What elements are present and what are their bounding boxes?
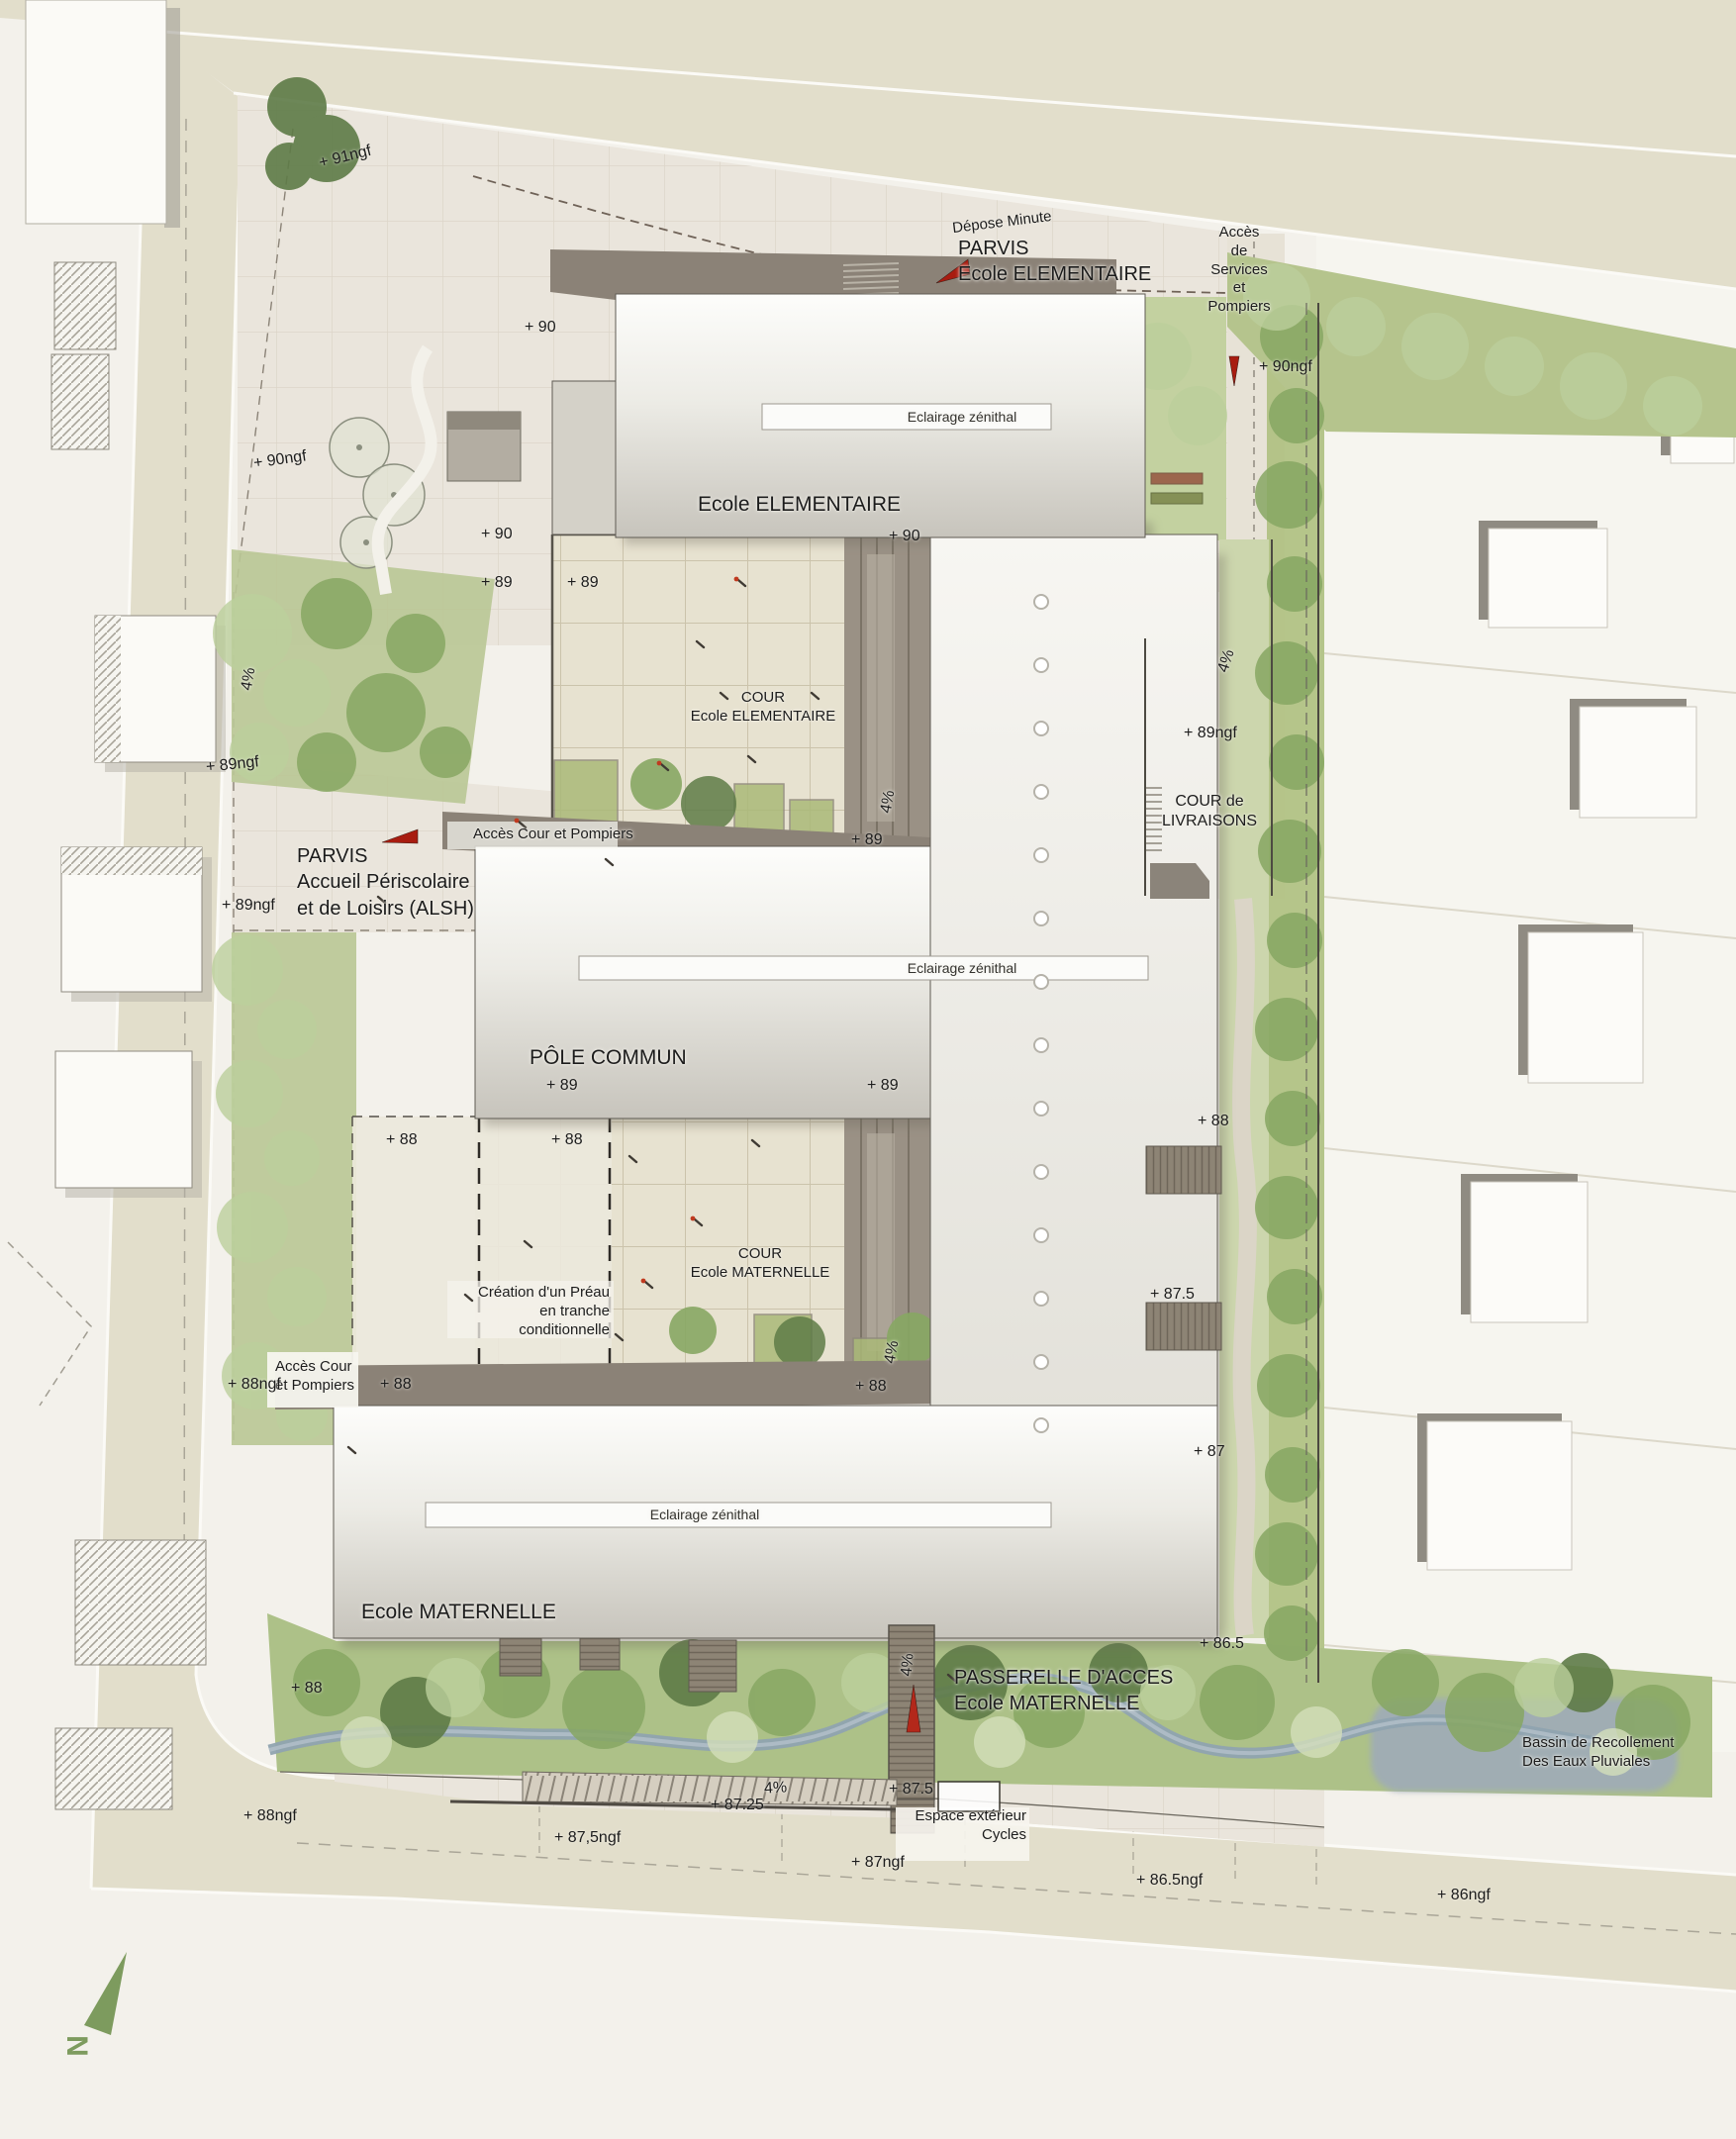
elev-88-b: + 88: [551, 1131, 583, 1149]
elev-89ngf-right: + 89ngf: [1184, 725, 1237, 742]
elev-87-right: + 87: [1194, 1443, 1225, 1461]
elev-90-top: + 90: [525, 319, 556, 337]
elev-89-c: + 89: [851, 831, 883, 849]
label-creation-preau: Création d'un Préau en tranche condition…: [453, 1284, 610, 1339]
label-eclairage-3: Eclairage zénithal: [606, 1507, 804, 1524]
label-espace-cycles: Espace extérieur Cycles: [906, 1807, 1026, 1845]
elev-89ngf-left2: + 89ngf: [222, 897, 275, 915]
label-acces-cour-pompiers: Accès Cour et Pompiers: [473, 826, 633, 844]
courtyard-elementaire: [552, 535, 930, 839]
label-eclairage-1: Eclairage zénithal: [863, 409, 1061, 427]
label-slope-cour-mat: 4%: [881, 1339, 905, 1365]
courtyard-maternelle: [352, 1117, 938, 1368]
elev-88-right: + 88: [1198, 1113, 1229, 1130]
label-ecole-maternelle: Ecole MATERNELLE: [361, 1600, 556, 1625]
label-slope-cour-elem: 4%: [877, 789, 901, 815]
label-slope-ramp: 4%: [763, 1778, 787, 1799]
elev-875ngf: + 87,5ngf: [554, 1829, 621, 1847]
label-eclairage-2: Eclairage zénithal: [863, 960, 1061, 978]
elev-89-d: + 89: [546, 1077, 578, 1095]
label-pole-commun: PÔLE COMMUN: [530, 1045, 687, 1071]
elev-88-a: + 88: [386, 1131, 418, 1149]
elev-86ngf: + 86ngf: [1437, 1887, 1491, 1904]
label-bassin: Bassin de Recollement Des Eaux Pluviales: [1522, 1734, 1674, 1772]
elev-865ngf: + 86.5ngf: [1136, 1872, 1203, 1890]
elementaire-west-wing: [552, 381, 616, 535]
elev-88-e: + 88: [291, 1680, 323, 1698]
elev-89-b: + 89: [567, 574, 599, 592]
elev-88-d: + 88: [855, 1378, 887, 1396]
elev-88-c: + 88: [380, 1376, 412, 1394]
label-cour-livraisons: COUR de LIVRAISONS: [1140, 792, 1279, 831]
label-ecole-elementaire: Ecole ELEMENTAIRE: [698, 492, 901, 518]
label-cour-elementaire: COUR Ecole ELEMENTAIRE: [659, 689, 867, 727]
elev-8725: + 87.25: [711, 1797, 764, 1814]
label-slope-passerelle: 4%: [898, 1653, 919, 1678]
label-passerelle: PASSERELLE D'ACCES Ecole MATERNELLE: [954, 1665, 1173, 1717]
elev-89-e: + 89: [867, 1077, 899, 1095]
label-cour-maternelle: COUR Ecole MATERNELLE: [655, 1245, 865, 1283]
label-parvis-alsh: PARVIS Accueil Périscolaire et de Loisir…: [297, 843, 474, 922]
elev-88ngf-left: + 88ngf: [228, 1376, 281, 1394]
elev-89-a: + 89: [481, 574, 513, 592]
label-acces-services: Accès de Services et Pompiers: [1180, 224, 1299, 317]
elev-87ngf: + 87ngf: [851, 1854, 905, 1872]
site-plan: Dépose Minute PARVIS Ecole ELEMENTAIRE A…: [0, 0, 1736, 2139]
north-letter: N: [59, 2035, 93, 2057]
elev-875-ramp: + 87.5: [889, 1781, 933, 1799]
label-acces-cour-pompiers-2: Accès Cour et Pompiers: [275, 1358, 354, 1396]
right-parcels: [1316, 228, 1736, 1752]
elev-875-right: + 87.5: [1150, 1286, 1195, 1304]
elev-90-a: + 90: [481, 526, 513, 543]
elev-90-b: + 90: [889, 528, 920, 545]
label-parvis-elementaire: PARVIS Ecole ELEMENTAIRE: [958, 236, 1151, 288]
elev-865-right: + 86.5: [1200, 1635, 1244, 1653]
elev-88ngf-bottom: + 88ngf: [243, 1807, 297, 1825]
label-slope-left: 4%: [238, 666, 261, 692]
elev-90ngf-right: + 90ngf: [1259, 358, 1312, 376]
pole-commun-building: [475, 846, 930, 1118]
